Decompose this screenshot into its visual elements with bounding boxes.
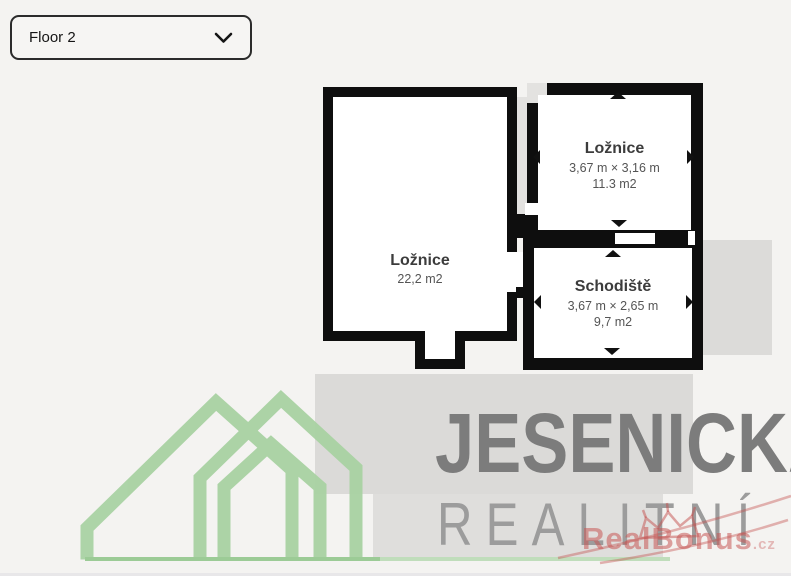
room-name: Ložnice [333,252,507,270]
room-area: 9,7 m2 [534,315,692,329]
room-name: Schodiště [534,278,692,296]
room-name: Ložnice [538,140,691,158]
logo-houses-icon [87,399,356,553]
room-area: 22,2 m2 [333,272,507,286]
door-opening [615,233,655,244]
floor-selector[interactable]: Floor 2 [10,15,252,60]
room-area: 11.3 m2 [538,177,691,191]
portal-watermark-name: RealBonus [582,521,753,556]
portal-watermark-suffix: .cz [753,536,776,553]
floorplan-viewer: Floor 2 Ložnice 22,2 m2 Ložnice 3,67 m ×… [0,0,791,576]
room-label-loznice-large: Ložnice 22,2 m2 [333,252,507,286]
room-label-loznice-small: Ložnice 3,67 m × 3,16 m 11.3 m2 [538,140,691,191]
chevron-down-icon[interactable] [214,32,233,44]
room-dimensions: 3,67 m × 2,65 m [534,299,692,313]
agency-watermark-line1: JESENICKÁ [435,401,791,485]
room-shape-loznice-large [323,87,535,369]
room-dimensions: 3,67 m × 3,16 m [538,161,691,175]
portal-watermark: RealBonus.cz [582,522,776,556]
room-label-schodiste: Schodiště 3,67 m × 2,65 m 9,7 m2 [534,278,692,329]
floor-selector-value: Floor 2 [29,29,76,46]
